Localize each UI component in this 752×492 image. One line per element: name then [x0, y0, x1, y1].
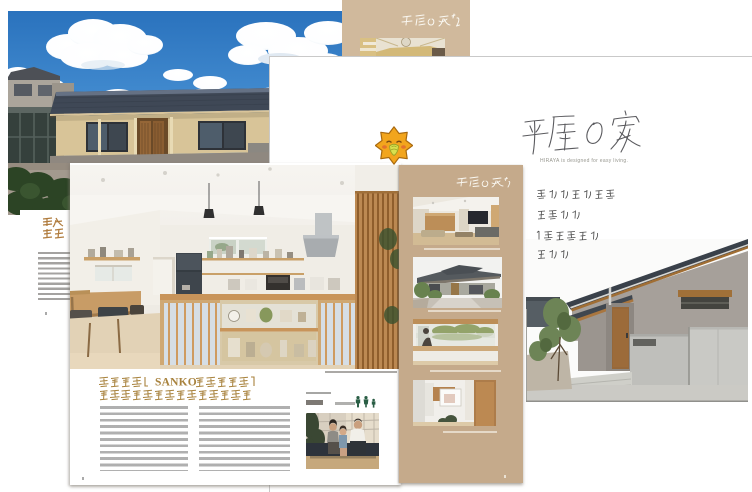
svg-text:SANKO: SANKO [155, 377, 197, 389]
